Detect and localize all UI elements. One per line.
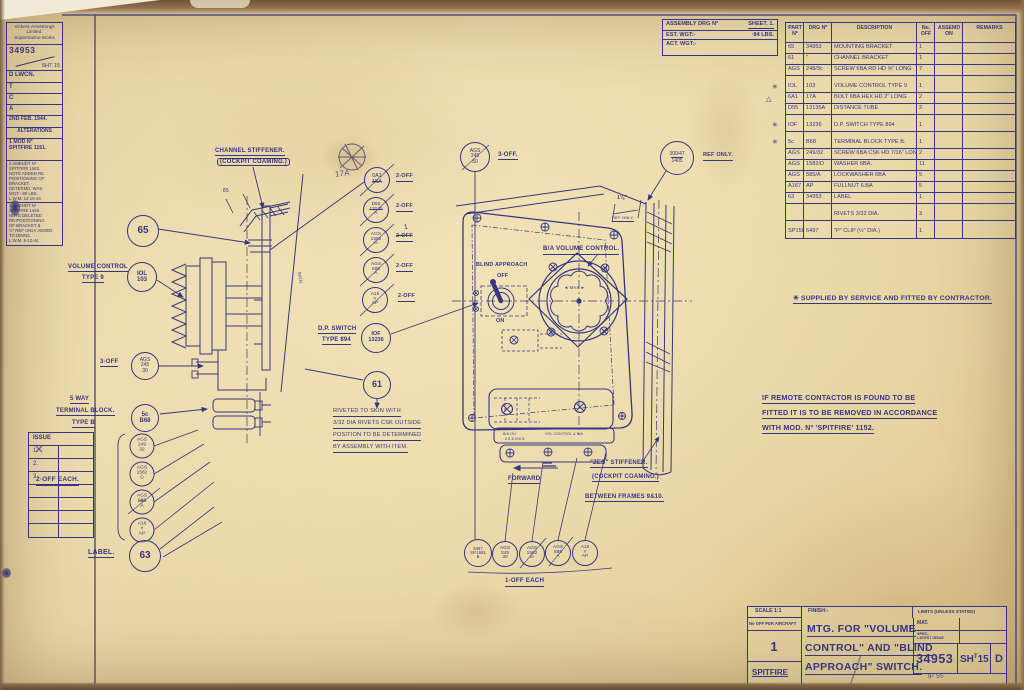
volume-control-type-label: TYPE 9 bbox=[82, 275, 104, 283]
three-off-label: 3-OFF bbox=[100, 359, 118, 367]
parts-row: AGS585/ALOCKWASHER 6BA5 bbox=[786, 171, 1015, 182]
parts-row: IOF13236D.P. SWITCH TYPE 8941 bbox=[786, 121, 1015, 132]
hand-note-mark: 9² 55 bbox=[928, 674, 944, 682]
on-label: ON bbox=[496, 319, 505, 325]
skin-label: SKIN. bbox=[296, 272, 303, 285]
side-view-volume-control bbox=[172, 174, 303, 444]
parts-table: PART NºDRG NºDESCRIPTIONNo. OFFASSEMD ON… bbox=[785, 22, 1016, 239]
remote-note-line2: FITTED IT IS TO BE REMOVED IN ACCORDANCE bbox=[762, 409, 937, 419]
dp-switch-label: D.P. SWITCH bbox=[318, 326, 356, 334]
parts-header-row: PART NºDRG NºDESCRIPTIONNo. OFFASSEMD ON… bbox=[786, 23, 1015, 43]
remote-note-line1: IF REMOTE CONTACTOR IS FOUND TO BE bbox=[762, 394, 915, 404]
spec-cell: SPEC- LATEST ISSUE bbox=[913, 631, 960, 644]
riveted-note-line2: 3/32 DIA RIVETS CSK OUTSIDE bbox=[333, 421, 421, 429]
issue-row-1: 1. bbox=[29, 446, 59, 458]
item-balloon-a16-left: A16 Y AP bbox=[130, 518, 155, 543]
alteration-3: 3 AMENDT Nº SPITFIRE 1440. NOTE DELETED … bbox=[7, 203, 62, 245]
drawing-number-cell: 34953 bbox=[913, 644, 957, 674]
parts-row: RIVETS 3/32 DIA.3 bbox=[786, 210, 1015, 221]
hand-one-mark: 1 bbox=[404, 224, 409, 232]
five-way-label2: TERMINAL BLOCK. bbox=[56, 408, 115, 416]
item-balloon-iof: IOF 13236 bbox=[361, 323, 391, 353]
item-balloon-5c: 5c B68 bbox=[131, 404, 159, 432]
max-label: ◄ MAX ► bbox=[564, 286, 585, 290]
item-balloon-ags249: AGS 249 32 bbox=[130, 434, 155, 459]
mat-cell: MAT. bbox=[913, 618, 960, 631]
item-balloon-a16: A16 Y AP bbox=[362, 287, 388, 313]
item-balloon-d55: D5513135A bbox=[363, 197, 389, 223]
five-way-label3: TYPE B bbox=[72, 420, 95, 428]
drawing-number: 34953 bbox=[9, 45, 36, 55]
off-label: OFF bbox=[497, 274, 508, 280]
est-wgt-value: ·84 LBS. bbox=[752, 32, 774, 38]
label-word: LABEL. bbox=[88, 549, 114, 558]
hand-marks bbox=[36, 144, 861, 688]
between-frames-label: BETWEEN FRAMES 9&10. bbox=[585, 494, 664, 502]
act-wgt-label: ACT. WGT:- bbox=[666, 41, 696, 47]
limits-cell: LIMITS (UNLESS STATED) bbox=[870, 607, 1007, 618]
front-panel-view bbox=[452, 186, 692, 435]
mat-value-cell bbox=[960, 618, 1007, 631]
parts-row: 5cB68TERMINAL BLOCK TYPE B.1 bbox=[786, 138, 1015, 149]
two-off-label: 2-OFF bbox=[396, 264, 413, 272]
supplied-note: ✳ SUPPLIED BY SERVICE AND FITTED BY CONT… bbox=[793, 295, 992, 304]
ba-volume-control-label: B/A VOLUME CONTROL. bbox=[543, 246, 619, 255]
riveted-note-line3: POSITION TO BE DETERMINED bbox=[333, 433, 421, 441]
est-wgt-label: EST. WGT:- bbox=[666, 32, 696, 38]
scale-cell: SCALE 1:1 bbox=[747, 606, 802, 618]
parts-row: SP15816497"P" CLIP (½" DIA.)1 bbox=[786, 227, 1015, 238]
item-balloon-300-47: 300/471405 bbox=[660, 141, 694, 175]
two-off-label: 2-OFF bbox=[396, 174, 413, 182]
item-balloon-ags1582-bottom: AGS 1582 D bbox=[519, 541, 545, 567]
issue-row-2: 2. bbox=[29, 459, 59, 471]
five-way-label1: 5 WAY bbox=[70, 396, 89, 404]
signature-row: T bbox=[7, 83, 62, 94]
no-off-heading-cell: No OFF PER AIRCRAFT bbox=[747, 618, 802, 631]
supplied-marker: ✳ bbox=[772, 83, 778, 91]
item-balloon-61: 61 bbox=[363, 371, 391, 399]
parts-row: IOL103VOLUME CONTROL TYPE 91 bbox=[786, 82, 1015, 93]
parts-row: 61"CHANNEL BRACKET1 bbox=[786, 54, 1015, 65]
strip-right-label: VOL CONTROL & B/A bbox=[545, 433, 583, 437]
zed-stiffener bbox=[643, 200, 674, 475]
two-off-label: 2-OFF bbox=[396, 204, 413, 212]
parts-row: 6A117ABOLT 6BA HEX HD 2" LONG2 bbox=[786, 93, 1015, 104]
volume-control-label: VOLUME CONTROL bbox=[68, 264, 128, 272]
three-off-top-label: 3-OFF. bbox=[498, 152, 518, 160]
blueprint-sheet: Vickers-Armstrongs Limited. Supermarine … bbox=[0, 0, 1024, 690]
spec-value-cell bbox=[960, 631, 1007, 644]
two-off-label: 2-OFF bbox=[398, 294, 415, 302]
item-balloon-ags1582-left: AGS 1582 D bbox=[130, 462, 155, 487]
forward-label: FORWARD bbox=[508, 476, 540, 484]
sheet-label: SHEET. 1. bbox=[748, 21, 774, 29]
channel-stiffener-label: CHANNEL STIFFENER. bbox=[215, 148, 285, 156]
parts-row: AGS248/3cSCREW 6BA RD HD ⅝" LONG7 bbox=[786, 65, 1015, 76]
terminal-plate bbox=[489, 389, 614, 462]
sheet-cell: SHT15 bbox=[957, 644, 990, 674]
leader-lines bbox=[118, 145, 666, 573]
zed-coaming-label: (COCKPIT COAMING.) bbox=[592, 474, 659, 482]
signature-row: A bbox=[7, 105, 62, 116]
zed-stiffener-label: "ZED" STIFFENER. bbox=[590, 460, 648, 468]
item-balloon-iol: IOL 103 bbox=[127, 262, 157, 292]
volume-knob bbox=[529, 253, 627, 347]
item-balloon-65: 65 bbox=[127, 215, 159, 247]
item-balloon-ags1582: AGS 1582 D bbox=[363, 227, 389, 253]
parts-row: AGS1582/DWASHER 6BA.11 bbox=[786, 160, 1015, 171]
sheet-number: SHT 15 bbox=[41, 63, 60, 69]
riveted-note-line4: BY ASSEMBLY WITH ITEM. bbox=[333, 445, 408, 453]
item-balloon-ags245-bottom: AGS 245 30 bbox=[492, 541, 518, 567]
cockpit-coaming-label: (COCKPIT COAMING.) bbox=[217, 158, 290, 166]
item-balloon-6a1: 6A115A bbox=[364, 167, 390, 193]
item-balloon-ags585: AGS 585 A bbox=[363, 257, 389, 283]
ref-only-dim-label: REF ONLY. bbox=[612, 216, 634, 222]
alteration-2: 2 AMENDT Nº SPITFIRE 1582. NOTE ADDED RE… bbox=[7, 161, 62, 203]
signature-row: C bbox=[7, 94, 62, 105]
dim-85: ·85 bbox=[221, 189, 229, 194]
assembly-header: ASSEMBLY DRG Nº SHEET. 1. EST. WGT:- ·84… bbox=[662, 19, 778, 56]
riveted-note-line1: RIVETED TO SKIN WITH bbox=[333, 409, 401, 417]
hand-17a-mark: 17A bbox=[335, 169, 351, 179]
dp-switch-type-label: TYPE 894 bbox=[322, 337, 351, 345]
dim-118: 1⅛" bbox=[617, 196, 627, 201]
item-balloon-6497: 6497 SP.1581 B bbox=[464, 539, 492, 567]
no-off-value-cell: 1 bbox=[747, 631, 802, 662]
strip-terminal-letters: A B B M/A B bbox=[505, 438, 525, 441]
supplied-marker: ✳ bbox=[772, 138, 778, 146]
remote-note-line3: WITH MOD. Nº 'SPITFIRE' 1152. bbox=[762, 424, 874, 434]
drawing-number-cell: 34953 SHT 15 bbox=[7, 45, 62, 71]
title-line-1: MTG. FOR "VOLUME bbox=[807, 624, 916, 637]
title-line-3: APPROACH" SWITCH. bbox=[805, 662, 922, 675]
supplied-marker: ✳ bbox=[772, 121, 778, 129]
item-balloon-a16-bottom: A16 Y AP bbox=[572, 540, 598, 566]
item-balloon-63: 63 bbox=[129, 540, 161, 572]
item-balloon-ags245-top: AGS 245 50 bbox=[460, 142, 490, 172]
issue-heading: ISSUE bbox=[29, 433, 51, 445]
two-off-label-struck: 2-OFF bbox=[396, 234, 413, 242]
aircraft-cell: SPITFIRE bbox=[747, 662, 802, 686]
parts-row: 6334953LABEL1 bbox=[786, 193, 1015, 204]
item-balloon-ags585-left: AGS585A bbox=[130, 490, 155, 515]
company-name: Vickers-Armstrongs Limited. Supermarine … bbox=[7, 23, 62, 45]
revision-cell: D bbox=[990, 644, 1007, 674]
date-row: 2ND FEB. 1944. bbox=[7, 116, 62, 128]
alterations-heading: ALTERATIONS bbox=[7, 128, 62, 139]
blind-approach-label: BLIND APPROACH bbox=[476, 263, 527, 269]
assembly-drg-label: ASSEMBLY DRG Nº bbox=[666, 21, 718, 29]
ref-only-label: REF ONLY. bbox=[703, 153, 733, 161]
parts-row: A167APFULLNUT 6.BA5 bbox=[786, 182, 1015, 193]
warning-triangle-marker: △ bbox=[766, 95, 771, 103]
two-off-each-label: 2·OFF EACH. bbox=[36, 477, 79, 486]
item-balloon-ags245-left: AGS 245 30 bbox=[131, 352, 159, 380]
parts-row: 6534953MOUNTING BRACKET1 bbox=[786, 43, 1015, 54]
forward-arrow bbox=[514, 463, 558, 468]
signature-row: D LWCN. bbox=[7, 71, 62, 83]
alteration-1: 1 MOD Nº SPITFIRE 1151. bbox=[7, 139, 62, 161]
parts-row: D5513135ADISTANCE TUBE2 bbox=[786, 104, 1015, 115]
corner-title-block: Vickers-Armstrongs Limited. Supermarine … bbox=[6, 22, 63, 246]
parts-row: AGS249/32SCREW 6BA CSK HD 7/16" LONG2 bbox=[786, 149, 1015, 160]
one-off-each-label: 1-OFF EACH bbox=[505, 578, 544, 587]
item-balloon-ags585-bottom: AGS 585 A bbox=[545, 540, 571, 566]
